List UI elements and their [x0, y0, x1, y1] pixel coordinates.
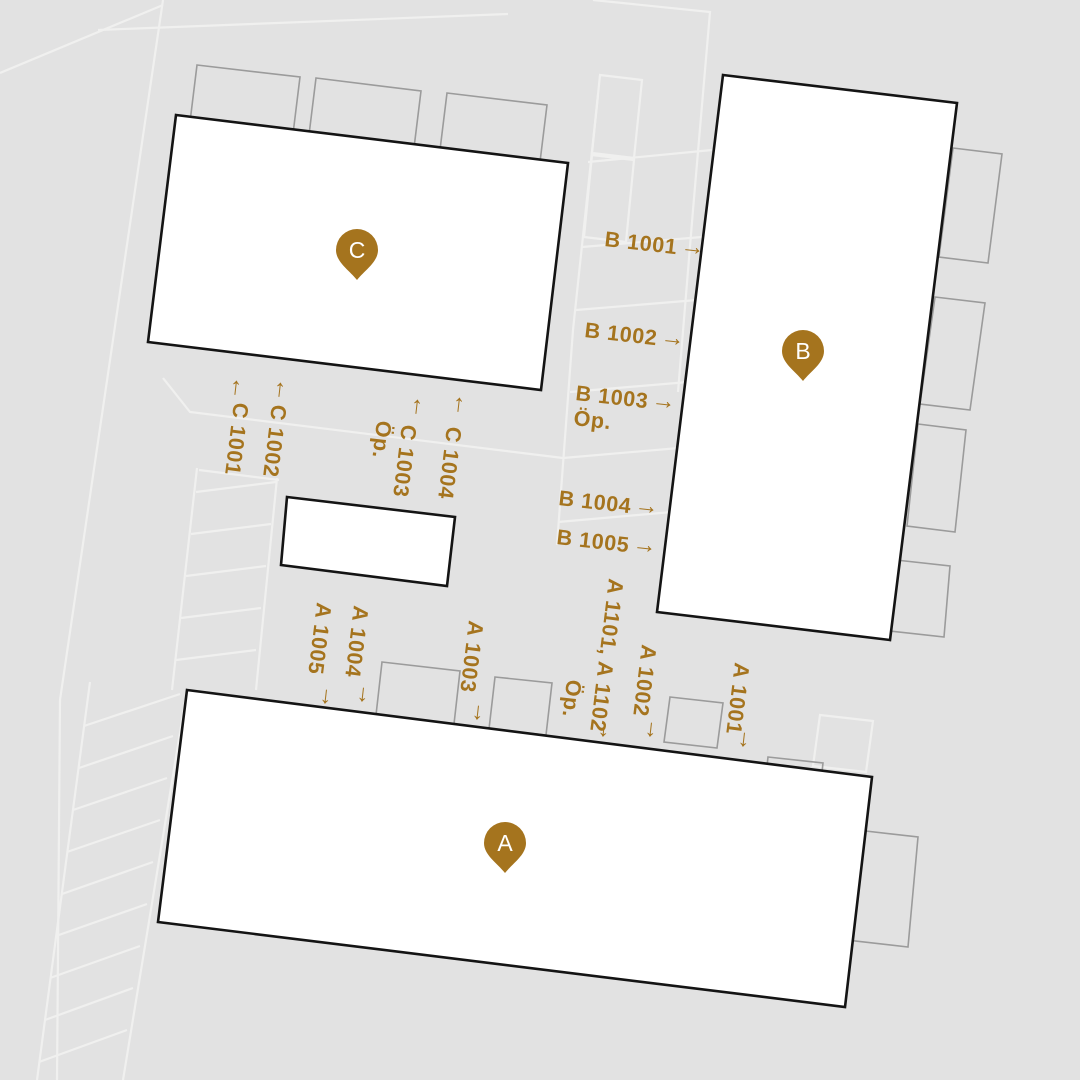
pin-letter-b: B [795, 338, 810, 364]
arrow-right-icon: → [633, 491, 660, 521]
pin-letter-a: A [497, 830, 513, 856]
pin-letter-c: C [349, 237, 366, 263]
arrow-right-icon: → [659, 323, 686, 353]
site-plan-map: B 1001 → B 1002 → B 1003 → Öp. B 1004 → … [0, 0, 1080, 1080]
site-plan-svg: B 1001 → B 1002 → B 1003 → Öp. B 1004 → … [0, 0, 1080, 1080]
unit-note-a1101-a1102: Öp. [557, 678, 586, 718]
unit-note-b1003: Öp. [572, 405, 612, 434]
unit-note-c1003: Öp. [367, 419, 396, 459]
arrow-right-icon: → [631, 530, 658, 560]
arrow-right-icon: → [650, 386, 677, 416]
arrow-right-icon: → [679, 232, 706, 262]
